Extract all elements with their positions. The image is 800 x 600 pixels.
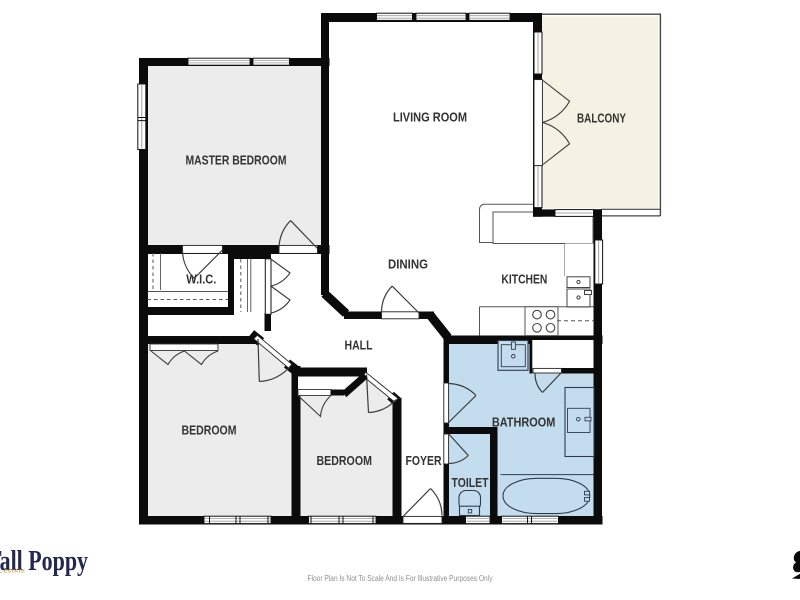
svg-text:LIVING ROOM: LIVING ROOM xyxy=(393,110,467,125)
svg-text:W.I.C.: W.I.C. xyxy=(186,272,216,287)
svg-text:FOYER: FOYER xyxy=(406,453,442,468)
svg-text:TOILET: TOILET xyxy=(452,475,489,490)
svg-text:HALL: HALL xyxy=(345,338,373,353)
svg-text:BEDROOM: BEDROOM xyxy=(182,423,237,438)
svg-text:BEDROOM: BEDROOM xyxy=(316,453,372,468)
svg-text:MASTER BEDROOM: MASTER BEDROOM xyxy=(186,153,287,168)
svg-text:BALCONY: BALCONY xyxy=(577,111,626,126)
svg-text:REAL ESTATE: REAL ESTATE xyxy=(0,569,25,574)
svg-text:BATHROOM: BATHROOM xyxy=(492,415,556,430)
svg-text:Floor Plan Is Not To Scale And: Floor Plan Is Not To Scale And Is For Il… xyxy=(308,574,493,583)
svg-text:DINING: DINING xyxy=(388,257,428,272)
svg-text:KITCHEN: KITCHEN xyxy=(501,272,547,287)
